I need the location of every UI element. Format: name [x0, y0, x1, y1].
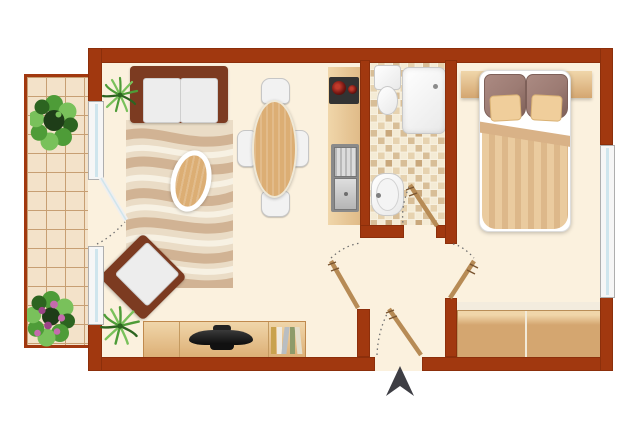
sofa: [130, 66, 228, 123]
kitchen-sink-unit: [331, 144, 359, 212]
wall-right-upper: [600, 48, 613, 145]
sideboard-divider: [268, 322, 269, 358]
bedroom-window: [600, 145, 615, 298]
washbasin: [371, 173, 404, 216]
burner-large: [332, 81, 346, 95]
pillow-small-left: [489, 94, 521, 122]
tv-sideboard: [143, 321, 306, 359]
sideboard-divider: [179, 322, 180, 358]
sofa-cushion: [143, 78, 181, 123]
wall-hall-bedroom-stub: [445, 298, 457, 357]
shower-tray: [402, 67, 446, 134]
wall-hall-living-stub: [357, 309, 370, 357]
wardrobe: [457, 310, 603, 359]
toilet-bowl: [377, 86, 398, 115]
flower-plant: [27, 288, 75, 348]
wall-right-lower: [600, 296, 613, 371]
shower-drain: [433, 84, 438, 89]
book: [271, 327, 276, 354]
book: [294, 327, 302, 354]
book-row: [271, 327, 301, 354]
wall-bottom-right: [422, 357, 613, 371]
tv: [189, 330, 253, 345]
sink-basin: [334, 178, 357, 210]
floor-plan: [0, 0, 640, 427]
tv-stand: [210, 344, 234, 350]
dining-table: [252, 100, 297, 198]
palm-plant-bottom: [98, 292, 142, 360]
double-bed: [479, 70, 571, 232]
pillow-small-right: [530, 94, 562, 122]
cooktop: [329, 77, 359, 104]
bush-plant: [30, 92, 78, 152]
wall-kitchen-bathroom: [360, 60, 370, 238]
washbasin-tap: [376, 193, 381, 198]
wall-top: [88, 48, 613, 63]
sink-drainboard: [334, 147, 357, 177]
sofa-cushion: [180, 78, 218, 123]
burner-small: [348, 85, 357, 94]
window-glass: [95, 104, 98, 177]
window-glass: [606, 148, 609, 295]
wardrobe-divider: [525, 311, 527, 358]
palm-plant-top: [100, 64, 140, 126]
wall-bathroom-bottom-left: [360, 225, 404, 238]
wall-bathroom-bedroom: [445, 60, 457, 244]
